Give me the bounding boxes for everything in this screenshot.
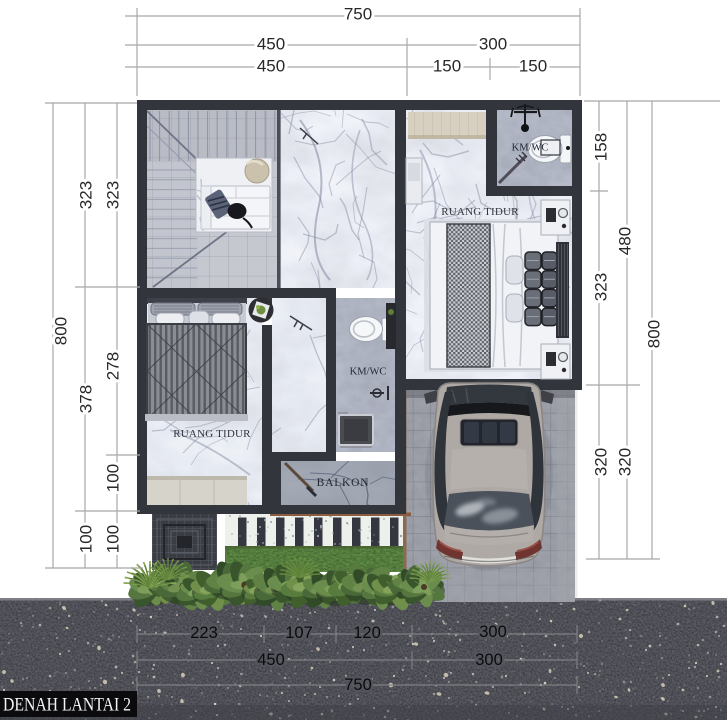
- svg-text:378: 378: [77, 385, 96, 413]
- svg-text:100: 100: [104, 525, 123, 553]
- svg-text:100: 100: [104, 464, 123, 492]
- svg-text:KM/WC: KM/WC: [350, 367, 387, 378]
- svg-text:450: 450: [257, 651, 285, 669]
- svg-text:480: 480: [616, 227, 635, 255]
- svg-text:300: 300: [479, 35, 507, 54]
- svg-text:750: 750: [344, 5, 372, 24]
- svg-text:158: 158: [592, 133, 611, 161]
- svg-text:107: 107: [285, 624, 313, 642]
- svg-text:100: 100: [77, 525, 96, 553]
- svg-text:150: 150: [519, 57, 547, 76]
- svg-text:223: 223: [190, 624, 218, 642]
- svg-text:323: 323: [592, 273, 611, 301]
- svg-text:BALKON: BALKON: [317, 477, 370, 489]
- svg-text:320: 320: [592, 448, 611, 476]
- svg-text:300: 300: [479, 623, 507, 641]
- svg-text:800: 800: [645, 320, 664, 348]
- svg-text:120: 120: [353, 624, 381, 642]
- svg-text:RUANG TIDUR: RUANG TIDUR: [173, 428, 251, 440]
- svg-text:323: 323: [77, 181, 96, 209]
- svg-text:300: 300: [475, 651, 503, 669]
- svg-text:450: 450: [257, 57, 285, 76]
- svg-text:DENAH LANTAI 2: DENAH LANTAI 2: [3, 695, 131, 716]
- svg-text:450: 450: [257, 35, 285, 54]
- svg-text:800: 800: [52, 317, 71, 345]
- svg-text:150: 150: [433, 57, 461, 76]
- svg-text:KM/WC: KM/WC: [512, 143, 549, 154]
- svg-text:RUANG TIDUR: RUANG TIDUR: [441, 206, 519, 218]
- svg-text:278: 278: [104, 352, 123, 380]
- svg-text:320: 320: [616, 448, 635, 476]
- svg-text:323: 323: [104, 181, 123, 209]
- svg-text:750: 750: [344, 676, 372, 694]
